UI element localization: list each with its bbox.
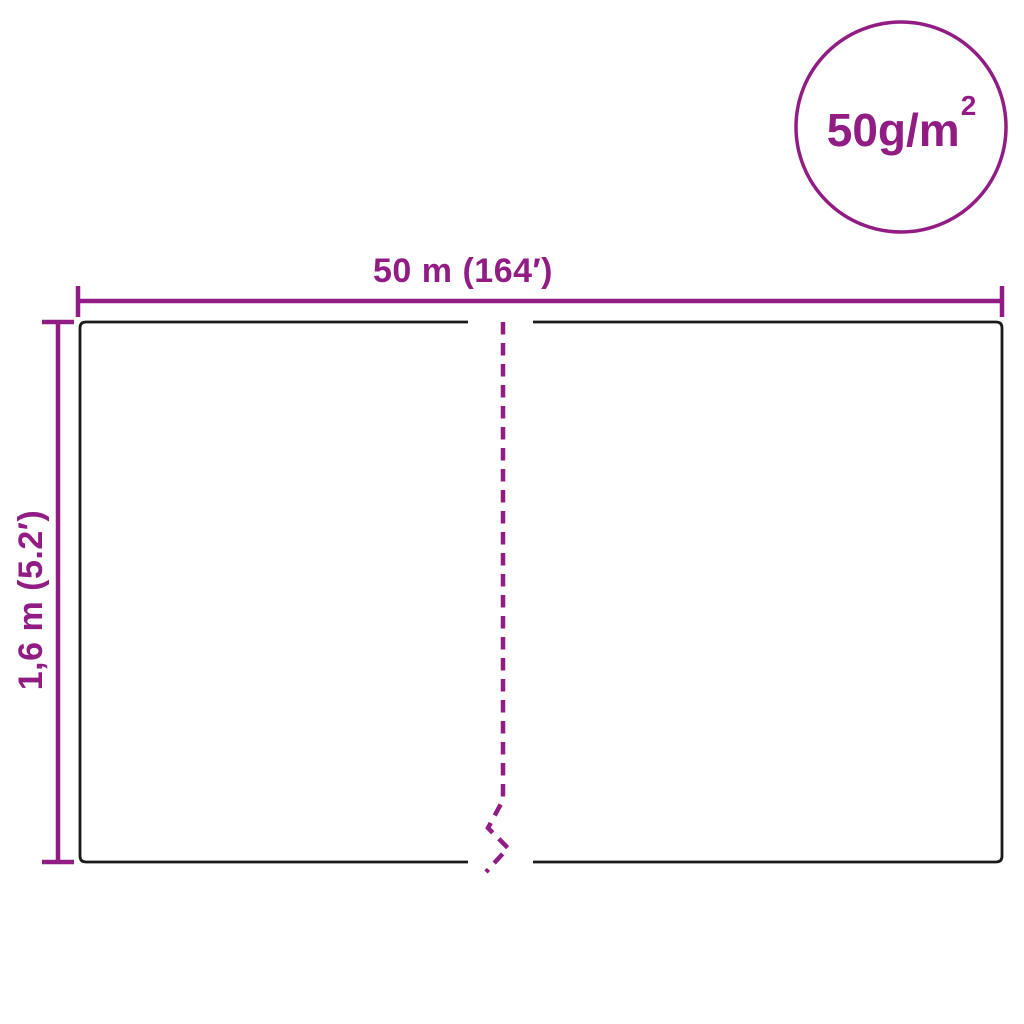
sheet-outline-left: [80, 322, 468, 862]
center-fold-line: [486, 322, 508, 872]
sheet-outline-right: [533, 322, 1002, 862]
width-dimension-label: 50 m (164′): [373, 254, 553, 288]
weight-badge-superscript: 2: [961, 90, 977, 121]
height-dimension-label: 1,6 m (5.2′): [14, 510, 48, 690]
product-dimension-diagram: 50 m (164′) 1,6 m (5.2′) 50g/m2: [0, 0, 1024, 1024]
weight-badge-value: 50g/m: [827, 104, 960, 156]
weight-badge-label: 50g/m2: [827, 107, 976, 153]
